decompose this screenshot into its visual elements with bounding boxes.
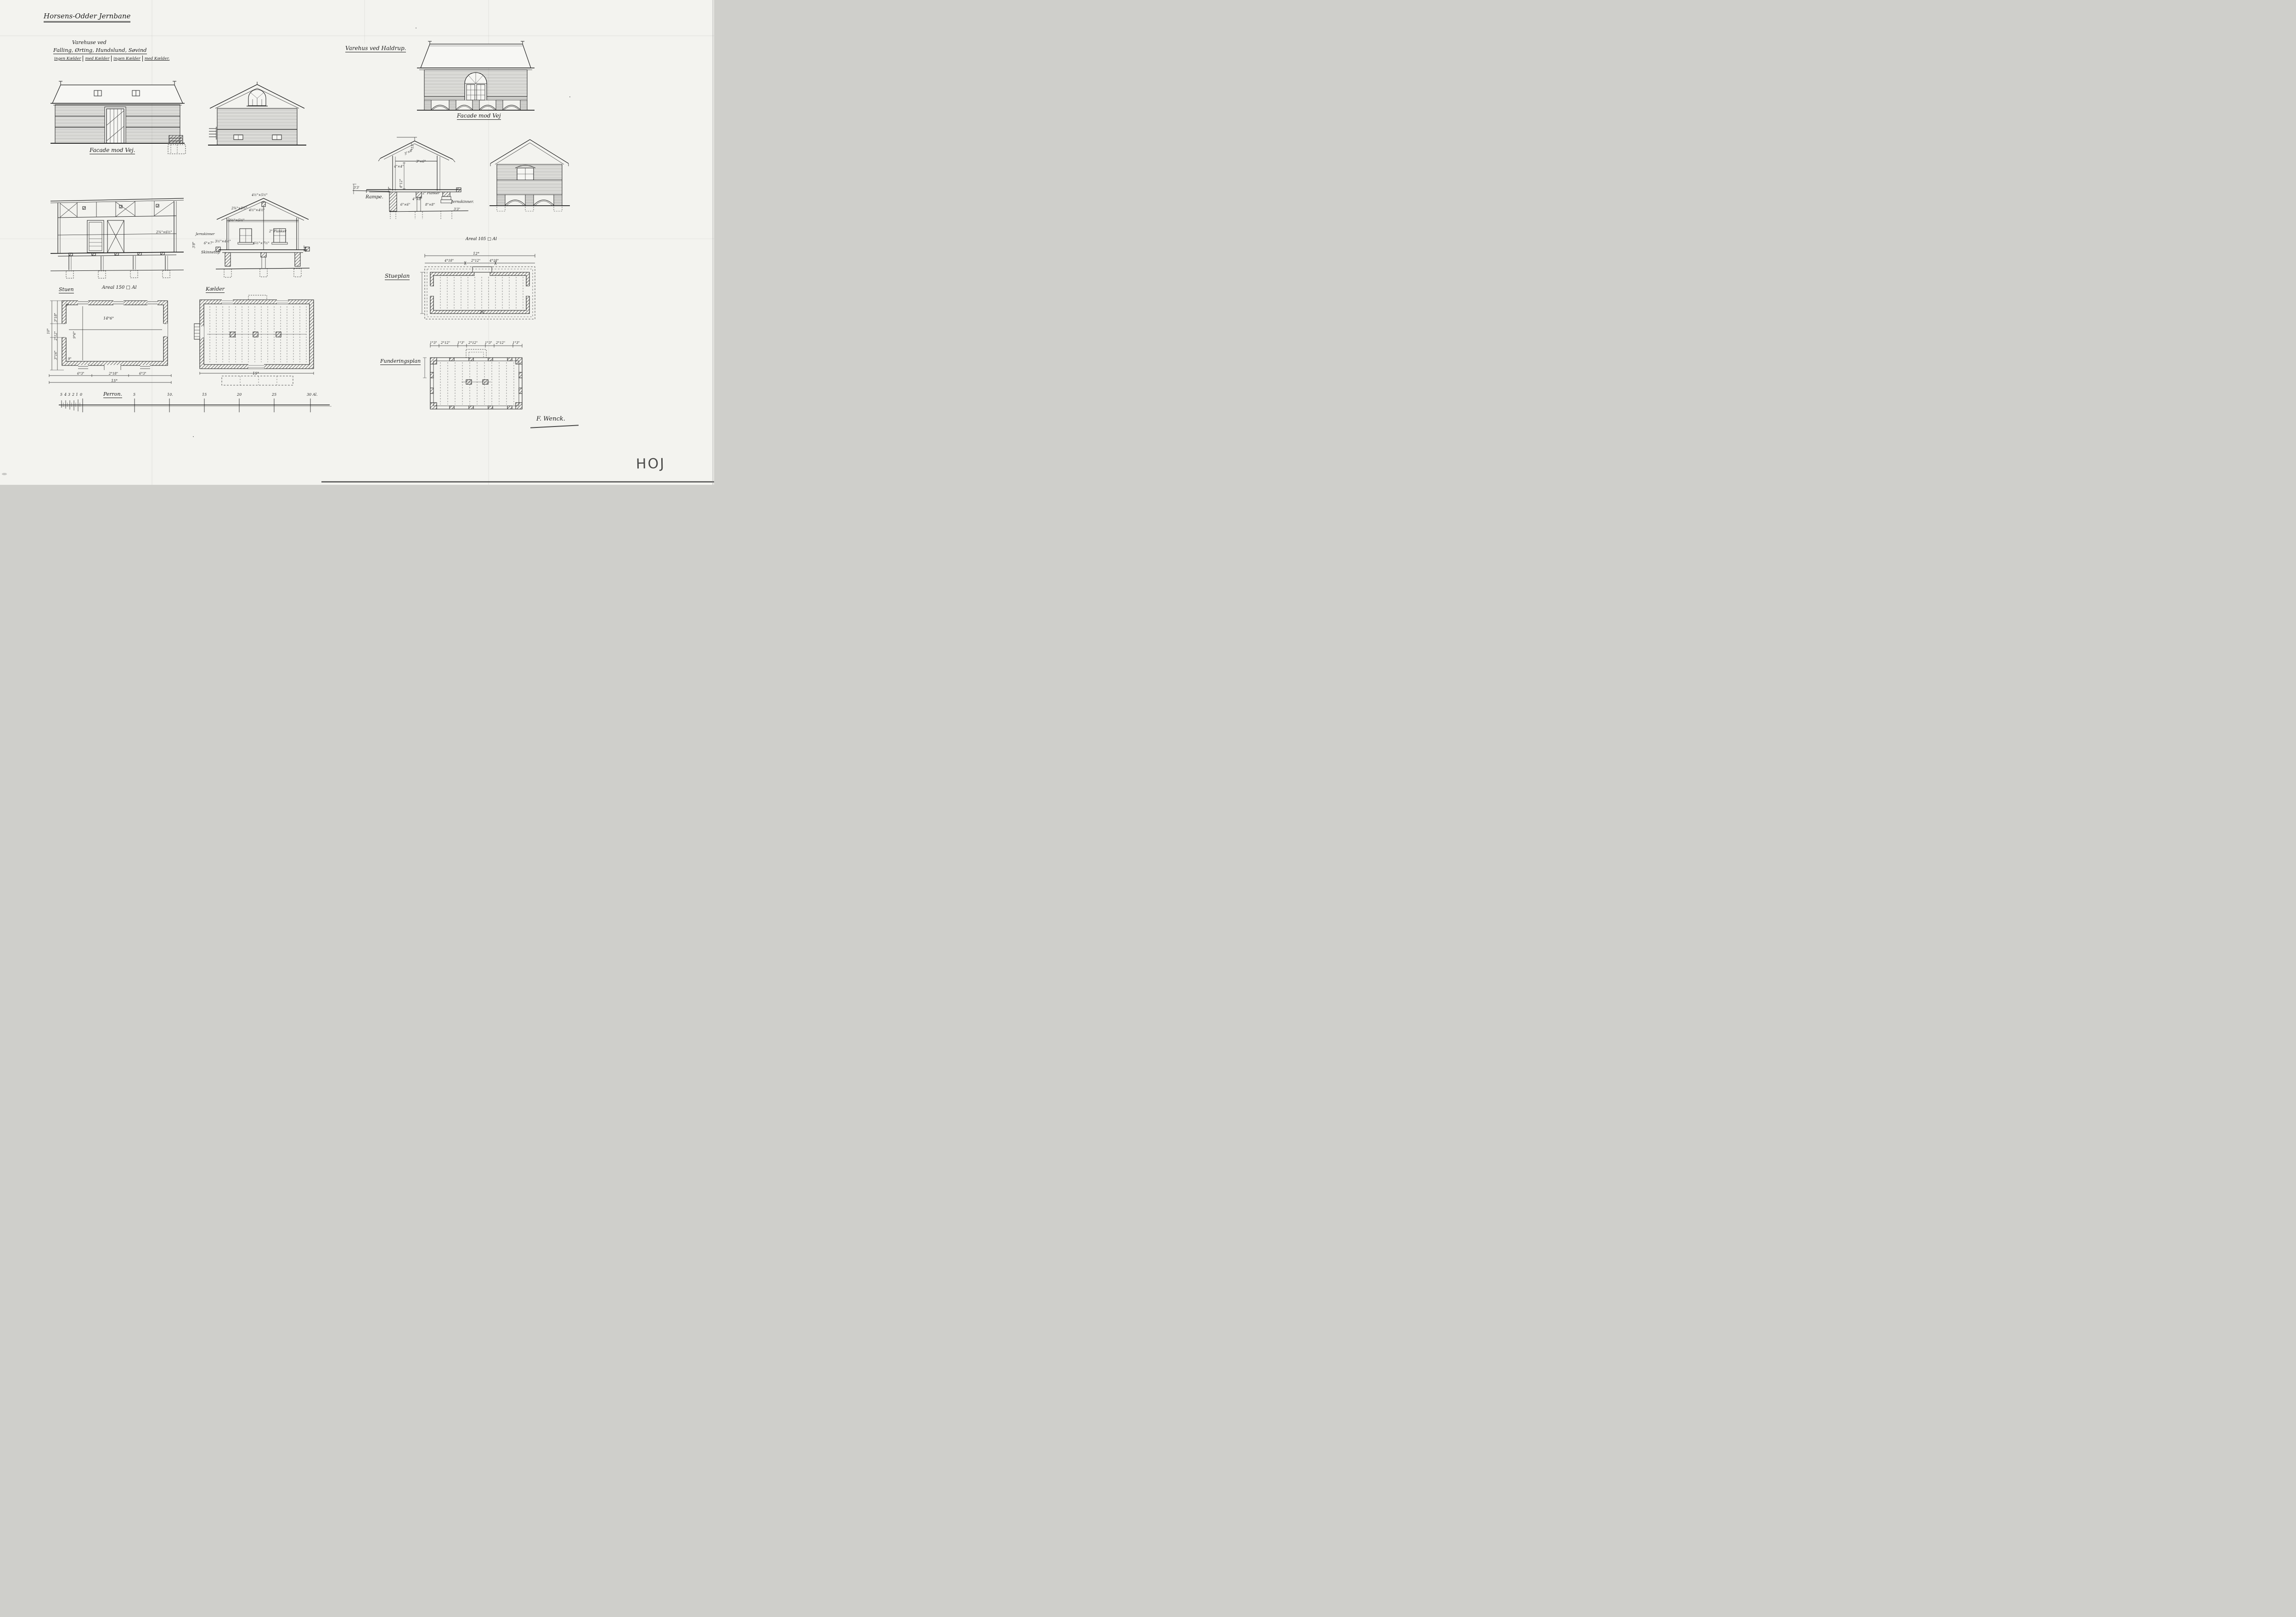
dim-stueplan-overall: 12° <box>473 252 479 256</box>
dim-post2: 6"×6" <box>400 203 410 207</box>
scale-major-label: 15 <box>202 393 207 397</box>
scan-speck <box>416 28 416 28</box>
floor-plan-label: Stuen <box>59 286 74 293</box>
dim-post: 6"×7" <box>204 242 214 245</box>
scale-minor-label: 4 <box>64 393 67 397</box>
dim-plan-left-seg: 3°18" <box>55 313 58 322</box>
scan-smudge <box>2 473 7 475</box>
facade-caption-left: Facade mod Vej. <box>90 147 135 154</box>
scale-major-label: 10. <box>167 393 173 397</box>
dim-plan-left-seg: 3°16" <box>55 350 58 359</box>
dim-plan-inner-width: 14°6" <box>103 317 114 320</box>
right-sheet-title: Varehus ved Haldrup. <box>345 45 406 52</box>
scale-minor-label: 1 <box>76 393 78 397</box>
dim-stueplan-seg: 2°12" <box>471 259 480 263</box>
ground-floor-plan <box>44 295 177 394</box>
dim-floor-beam: 4"×8" <box>412 198 422 201</box>
corner-mark: HOJ <box>636 455 666 472</box>
dim-cellar-overall-width: 15° <box>253 372 259 376</box>
dim-wall-thickness: 9" <box>66 304 69 307</box>
stueplan-label: Stueplan <box>385 273 410 280</box>
dim-floor-joist: 2¾"×6½" <box>156 231 172 234</box>
table-cell: med Kælder <box>83 56 112 62</box>
scale-minor-label: 2 <box>72 393 74 397</box>
fold-crease-vertical <box>364 0 365 44</box>
dim-plan-bottom-seg: 6°3" <box>77 372 84 376</box>
label-iron-rail-haldrup: Jernskinner. <box>451 200 474 204</box>
stueplan-area-label: Areal 105 □ Al <box>466 237 497 241</box>
scale-major-label: 20 <box>237 393 242 397</box>
scanned-drawing-sheet: Horsens-Odder Jernbane Varehuse ved Fall… <box>0 0 714 485</box>
scale-minor-label: 5 <box>60 393 62 397</box>
cellar-variant-table: ingen Kælder med Kælder ingen Kælder med… <box>52 56 171 62</box>
dim-plan-left-overall: 10° <box>47 328 51 334</box>
dim-rafter: 2¾"×5½" <box>231 207 248 210</box>
signature-flourish <box>530 425 579 428</box>
dim-collar: 2½"×5½" <box>229 219 245 222</box>
dim-ramp-height: 3'3' <box>354 186 360 190</box>
label-rail-top: Skinnetop <box>201 251 220 254</box>
drawing-title: Horsens-Odder Jernbane <box>44 12 130 22</box>
dim-wall-thickness: 9" <box>68 358 72 361</box>
dim-brace: 3½"×4½" <box>215 240 231 243</box>
dim-height-left-haldrup: 3'8" <box>388 186 392 193</box>
scan-edge-shadow <box>321 481 714 483</box>
dim-height-right: 3'3" <box>304 245 307 252</box>
scale-minor-label: 0 <box>80 393 82 397</box>
facade-caption-haldrup: Facade mod Vej <box>457 112 501 120</box>
label-planks-haldrup: 2" Planker <box>422 192 439 195</box>
dim-king-post: 4½"×4½" <box>249 209 265 212</box>
scale-major-label: 30 Al. <box>307 393 318 397</box>
label-planks: 2" Planker <box>269 230 286 233</box>
dim-foundation-seg: 2°12" <box>496 342 505 345</box>
dim-foundation-seg: 2°12" <box>468 342 478 345</box>
scale-major-label: 25 <box>272 393 276 397</box>
scan-edge-shadow <box>712 0 714 485</box>
dim-plan-bottom-seg: 6°3" <box>139 372 146 376</box>
fold-crease-horizontal <box>0 35 714 36</box>
dim-foundation-seg: 1°3" <box>430 342 437 345</box>
dim-foundation-seg: 1°3" <box>485 342 492 345</box>
facade-elevation-left <box>51 79 185 157</box>
dim-height-left: 3'8" <box>193 241 196 248</box>
table-cell: ingen Kælder <box>112 56 142 62</box>
dim-post-haldrup: 4"×4" <box>394 165 404 168</box>
dim-beam: 6½"×7½" <box>253 242 270 245</box>
dim-ridge-beam: 4½"×5½" <box>252 194 268 197</box>
scale-minor-label: 3 <box>68 393 70 397</box>
scan-speck <box>193 436 194 437</box>
scan-speck <box>569 96 570 97</box>
dim-stueplan-seg: 4°18" <box>490 259 499 263</box>
dim-room-height: 4°12" <box>400 179 403 188</box>
dim-stueplan-seg: 4°18" <box>445 259 454 263</box>
label-iron-rails: Jernskinner <box>196 233 214 236</box>
dim-height-right-haldrup: 3'3" <box>454 208 460 211</box>
scale-bar <box>54 394 334 415</box>
ramp-label: Rampe. <box>366 195 383 200</box>
dim-plan-left-seg: 2°12" <box>55 331 58 340</box>
dim-plan-overall-width: 15° <box>111 379 118 383</box>
gable-elevation-haldrup <box>490 136 570 215</box>
dim-foundation-seg: 2°12" <box>441 342 450 345</box>
area-label: Areal 150 □ Al <box>102 285 137 290</box>
dim-plan-inner-depth: 9°6" <box>73 331 76 339</box>
foundation-plan-label: Funderingsplan <box>380 358 421 365</box>
dim-foundation-seg: 1°3" <box>457 342 465 345</box>
foundation-plan-haldrup <box>420 337 533 411</box>
signature: F. Wenck. <box>536 415 565 422</box>
cellar-plan-label: Kælder <box>206 286 225 293</box>
table-cell: ingen Kælder <box>52 56 83 62</box>
dim-pier: 8"×8" <box>425 203 435 207</box>
section-gable-middle <box>216 195 310 281</box>
gable-elevation-left <box>208 83 306 148</box>
station-names: Falling, Ørting, Hundslund, Søvind <box>53 47 147 54</box>
dim-foundation-seg: 1°3" <box>512 342 520 345</box>
dim-tie-beam: 3"×6" <box>416 160 426 163</box>
table-cell: med Kælder. <box>143 56 172 62</box>
table-heading: Varehuse ved <box>72 39 107 45</box>
stueplan-haldrup <box>420 249 542 326</box>
dim-plan-bottom-seg: 2°18" <box>109 372 118 376</box>
scale-major-label: 5 <box>133 393 135 397</box>
facade-elevation-haldrup <box>417 40 535 114</box>
section-long-left <box>51 193 184 281</box>
